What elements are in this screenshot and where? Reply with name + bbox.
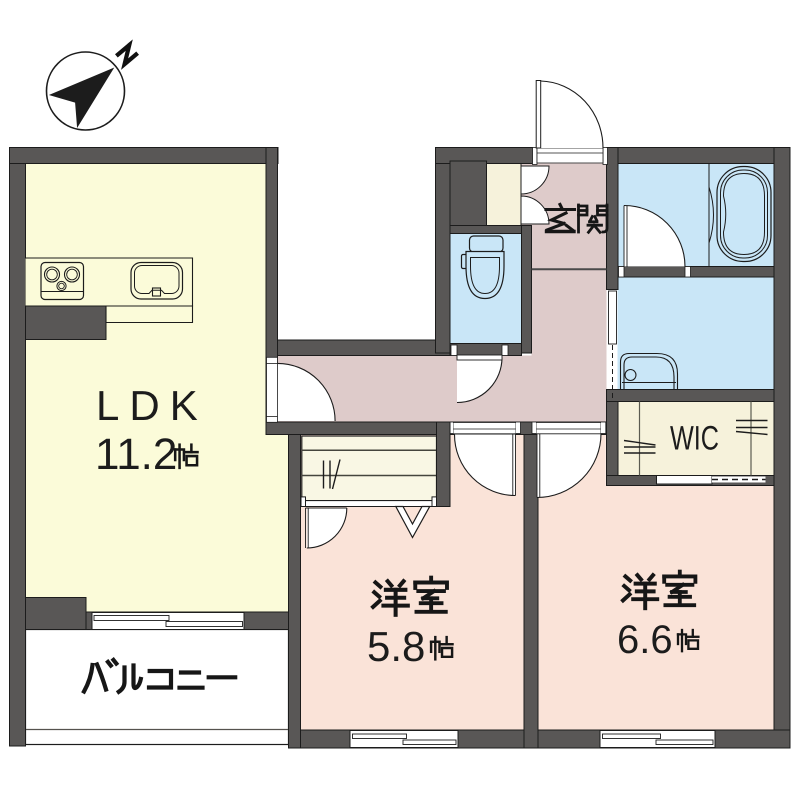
svg-text:5.8: 5.8: [367, 623, 425, 670]
svg-text:WIC: WIC: [670, 420, 719, 458]
svg-text:LDK: LDK: [96, 382, 208, 429]
svg-text:6.6: 6.6: [617, 618, 673, 662]
svg-text:11.2: 11.2: [95, 430, 177, 479]
